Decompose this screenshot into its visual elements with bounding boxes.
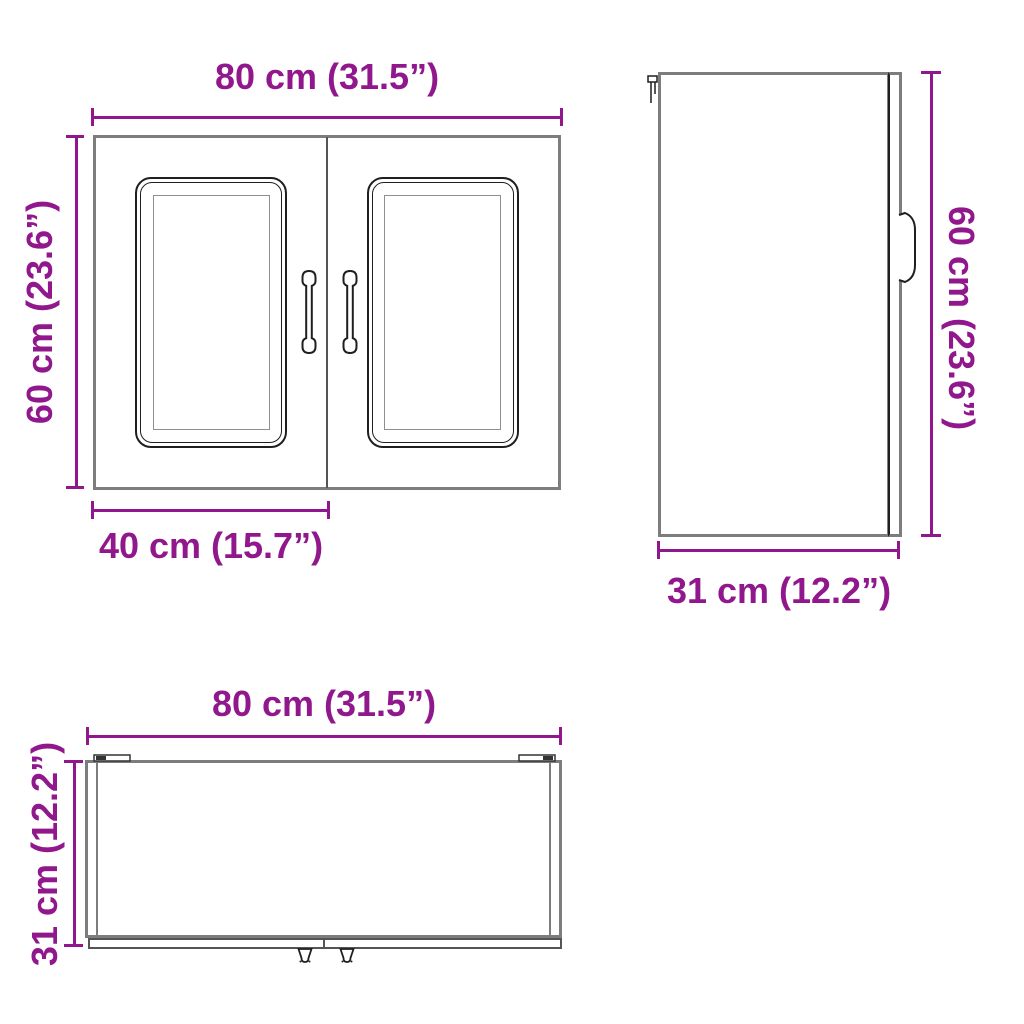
- front-width-dimension-label: 80 cm (31.5”): [215, 59, 439, 95]
- side-depth-tick-right: [897, 541, 900, 559]
- front-height-dimension-line: [75, 136, 78, 489]
- side-depth-dimension-label: 31 cm (12.2”): [667, 573, 891, 609]
- front-door-width-tick-right: [327, 501, 330, 519]
- top-hinge-right: [518, 753, 556, 763]
- front-height-dimension-label: 60 cm (23.6”): [22, 200, 58, 424]
- front-height-dimension-tick-top: [66, 135, 84, 138]
- front-door-width-tick-left: [91, 501, 94, 519]
- top-hinge-left: [93, 753, 131, 763]
- side-handle-profile: [898, 205, 920, 290]
- top-width-dimension-line: [87, 735, 562, 738]
- top-width-dimension-label: 80 cm (31.5”): [212, 686, 436, 722]
- top-width-tick-right: [559, 727, 562, 745]
- side-depth-dimension-line: [658, 549, 900, 552]
- side-height-dimension-line: [930, 72, 933, 537]
- top-depth-dimension-label: 31 cm (12.2”): [27, 742, 63, 966]
- left-door-glass-panel: [153, 195, 270, 430]
- right-door-glass-panel: [384, 195, 501, 430]
- top-left-side-wall: [96, 763, 98, 935]
- front-height-dimension-tick-bottom: [66, 486, 84, 489]
- top-depth-dimension-line: [73, 761, 76, 947]
- top-knob-right: [337, 948, 357, 964]
- front-door-width-dimension-line: [92, 509, 330, 512]
- dimension-diagram: 80 cm (31.5”) 60 cm (23.6”) 40: [0, 0, 1024, 1024]
- top-cabinet-body: [85, 760, 562, 938]
- side-cabinet-body: [658, 72, 890, 537]
- side-height-tick-top: [921, 71, 941, 74]
- front-width-dimension-tick-right: [560, 108, 563, 126]
- front-width-dimension-tick-left: [91, 108, 94, 126]
- top-door-front-strip: [88, 938, 562, 949]
- front-door-width-dimension-label: 40 cm (15.7”): [99, 528, 323, 564]
- top-width-tick-left: [86, 727, 89, 745]
- front-door-divider: [326, 137, 328, 488]
- side-height-dimension-label: 60 cm (23.6”): [943, 206, 979, 430]
- side-hinge-bracket: [644, 74, 660, 106]
- side-door-panel: [888, 72, 902, 537]
- front-width-dimension-line: [92, 116, 562, 119]
- top-door-divider: [323, 939, 325, 948]
- side-depth-tick-left: [657, 541, 660, 559]
- top-knob-left: [295, 948, 315, 964]
- left-door-handle: [298, 268, 320, 356]
- side-height-tick-bottom: [921, 534, 941, 537]
- top-right-side-wall: [549, 763, 551, 935]
- right-door-handle: [339, 268, 361, 356]
- top-depth-tick-top: [64, 760, 83, 763]
- top-depth-tick-bottom: [64, 944, 83, 947]
